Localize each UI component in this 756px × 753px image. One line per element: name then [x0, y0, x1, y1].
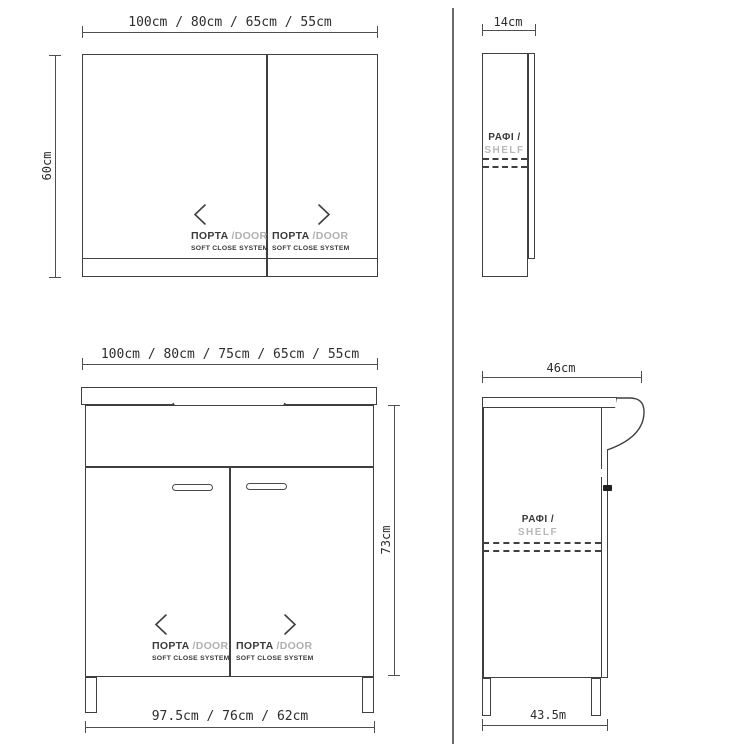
dimension-tick — [482, 719, 483, 731]
plinth-dimension-label: 43.5m — [530, 707, 566, 723]
shelf-label-english: SHELF — [482, 526, 594, 539]
door-handle-side — [603, 485, 612, 491]
shelf-dashed-line — [483, 550, 601, 552]
dimension-tick — [641, 371, 642, 383]
door-inner-edge — [601, 408, 602, 469]
dimension-tick — [482, 371, 483, 383]
technical-drawing-canvas: 100cm / 80cm / 65cm / 55cm 60cm ΠΟΡΤΑ/DO… — [0, 0, 756, 753]
depth-dimension-label: 46cm — [547, 360, 576, 376]
countertop-side — [482, 397, 617, 408]
leg — [591, 678, 601, 716]
leg — [482, 678, 491, 716]
shelf-label: ΡΑΦΙ / SHELF — [482, 513, 594, 539]
door-inner-edge — [601, 477, 602, 677]
plinth-dimension-line — [482, 725, 608, 726]
basin-lip-curve — [600, 396, 646, 454]
shelf-dashed-line — [483, 542, 601, 544]
shelf-label-greek: ΡΑΦΙ / — [482, 513, 594, 526]
dimension-tick — [607, 719, 608, 731]
vanity-side-view: 46cm ΡΑΦΙ / SHELF 43.5m — [0, 0, 756, 753]
depth-dimension-line — [482, 377, 641, 378]
body-bottom-edge — [482, 677, 608, 679]
